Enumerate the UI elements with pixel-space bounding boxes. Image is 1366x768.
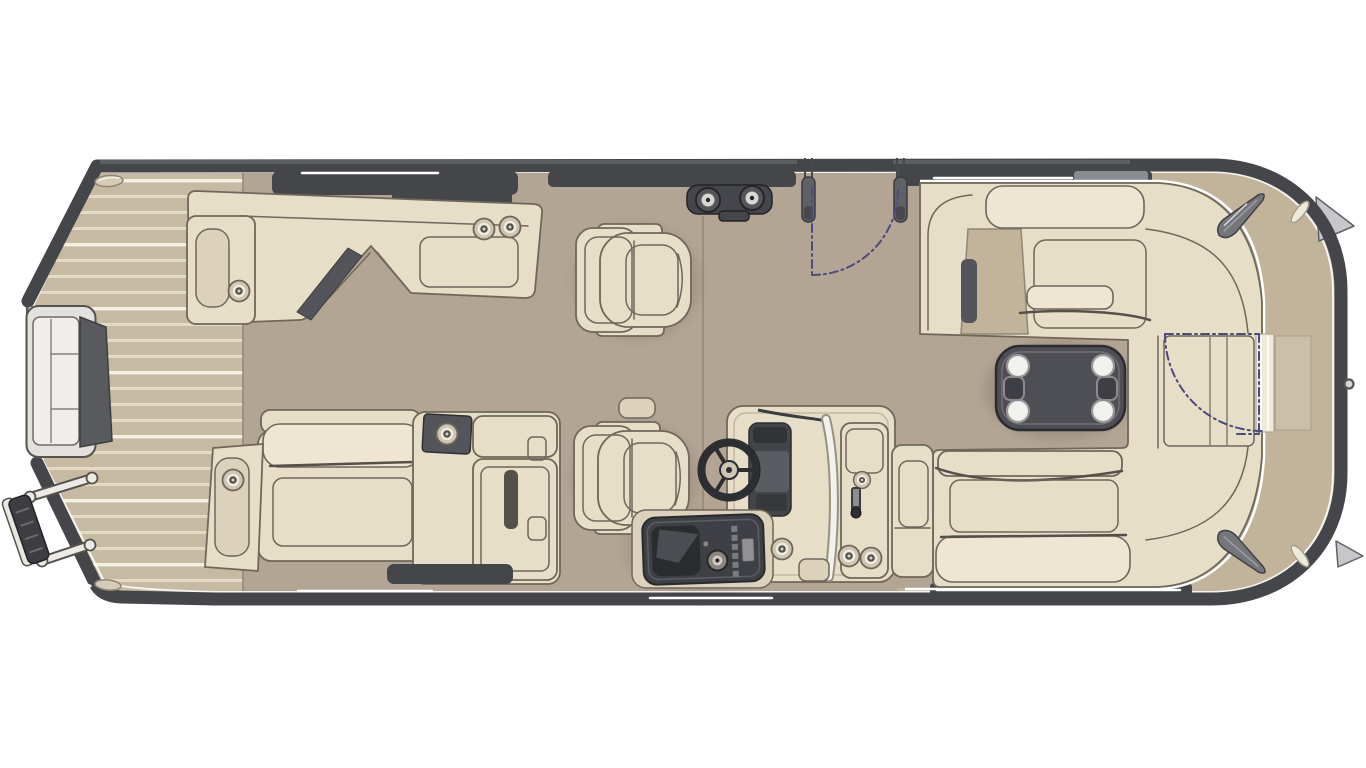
bench-dark-slot xyxy=(504,470,518,529)
cooler-console xyxy=(632,510,773,588)
cup-holder-icon xyxy=(223,470,244,491)
pontoon-floorplan-diagram xyxy=(0,0,1366,768)
removable-table xyxy=(996,346,1125,430)
gate-knob-icon xyxy=(854,472,871,489)
stern-backrest-pillow-bottom xyxy=(936,536,1130,582)
stern-tie-ring-icon xyxy=(1340,379,1354,389)
bow-boarding-gate xyxy=(27,306,113,457)
table-cup-holder-icon xyxy=(1007,400,1029,422)
cup-holder-icon xyxy=(500,217,521,238)
screenshot-root xyxy=(0,0,1366,768)
table-cup-holder-icon xyxy=(1092,355,1114,377)
cooler-knob-icon xyxy=(707,550,728,571)
captain-chair-port xyxy=(576,224,691,336)
bench-backrest-pillow xyxy=(263,424,421,467)
cup-holder-icon xyxy=(861,548,882,569)
stern-backrest-pillow-top xyxy=(986,186,1144,228)
table-handle-icon xyxy=(1097,377,1117,400)
cup-holder-icon xyxy=(474,219,495,240)
footrest-pad xyxy=(619,398,655,418)
cup-holder-icon xyxy=(437,424,458,445)
table-cup-holder-icon xyxy=(1092,400,1114,422)
deck-cup-holder-icon xyxy=(772,539,793,560)
stern-bench-end-arm xyxy=(892,445,933,577)
cup-holder-icon xyxy=(839,546,860,567)
table-cup-holder-icon xyxy=(1007,355,1029,377)
helm-side-gate xyxy=(839,423,889,578)
lounge-dark-slot xyxy=(961,259,977,323)
table-handle-icon xyxy=(1004,377,1024,400)
cup-holder-icon xyxy=(229,281,250,302)
